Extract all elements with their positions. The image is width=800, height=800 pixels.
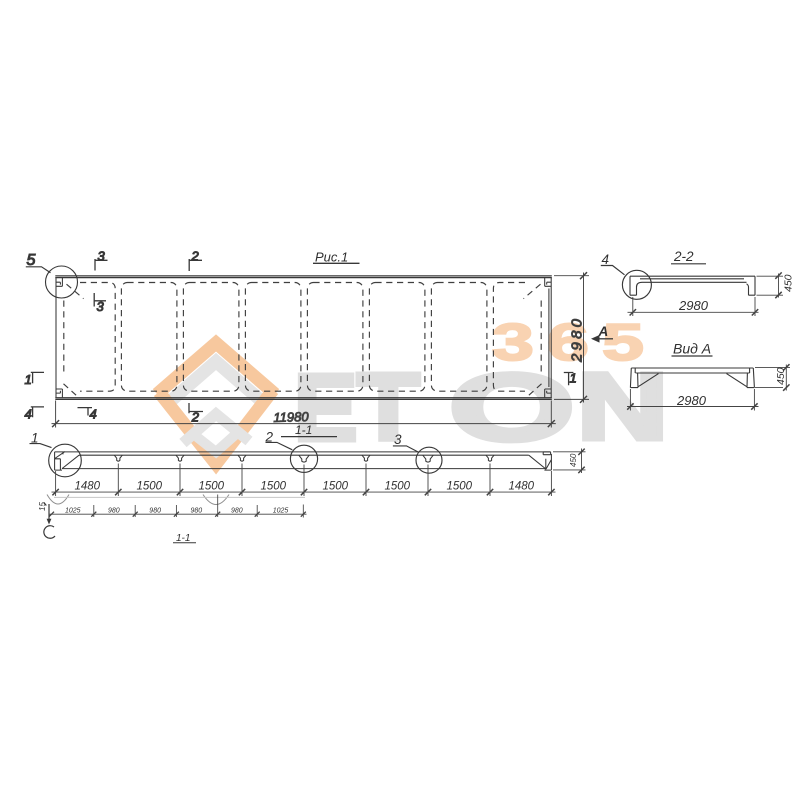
svg-text:980: 980	[231, 508, 243, 515]
svg-text:980: 980	[191, 508, 203, 515]
svg-text:2: 2	[191, 410, 200, 425]
svg-text:4: 4	[602, 252, 610, 267]
svg-text:450: 450	[783, 274, 795, 292]
svg-text:2980: 2980	[676, 393, 707, 408]
svg-text:4: 4	[25, 406, 32, 421]
svg-text:1: 1	[570, 371, 577, 386]
svg-text:А: А	[598, 324, 609, 339]
svg-text:1500: 1500	[447, 481, 473, 493]
svg-text:1500: 1500	[137, 481, 163, 493]
svg-text:1500: 1500	[199, 481, 225, 493]
svg-text:450: 450	[775, 367, 787, 385]
svg-text:1500: 1500	[385, 481, 411, 493]
svg-text:5: 5	[27, 252, 36, 269]
svg-text:T: T	[357, 353, 420, 460]
svg-text:2980: 2980	[569, 316, 586, 363]
svg-text:Вид А: Вид А	[673, 340, 711, 356]
svg-text:1480: 1480	[75, 481, 101, 493]
svg-text:1025: 1025	[273, 508, 289, 515]
svg-text:2: 2	[191, 249, 200, 264]
svg-text:3: 3	[97, 299, 105, 314]
svg-text:3: 3	[98, 249, 106, 264]
svg-text:450: 450	[569, 453, 578, 467]
svg-text:1025: 1025	[65, 508, 81, 515]
svg-text:1500: 1500	[323, 481, 349, 493]
svg-text:1500: 1500	[261, 481, 287, 493]
svg-text:3: 3	[394, 432, 402, 447]
svg-text:980: 980	[108, 508, 120, 515]
svg-text:1480: 1480	[509, 481, 535, 493]
svg-text:4: 4	[90, 406, 97, 421]
svg-text:1: 1	[25, 372, 32, 387]
svg-text:2-2: 2-2	[673, 249, 694, 264]
svg-text:2980: 2980	[678, 298, 709, 313]
svg-text:15: 15	[38, 502, 47, 511]
svg-text:1-1: 1-1	[295, 423, 312, 437]
svg-text:980: 980	[149, 508, 161, 515]
svg-text:Рис.1: Рис.1	[315, 249, 348, 264]
